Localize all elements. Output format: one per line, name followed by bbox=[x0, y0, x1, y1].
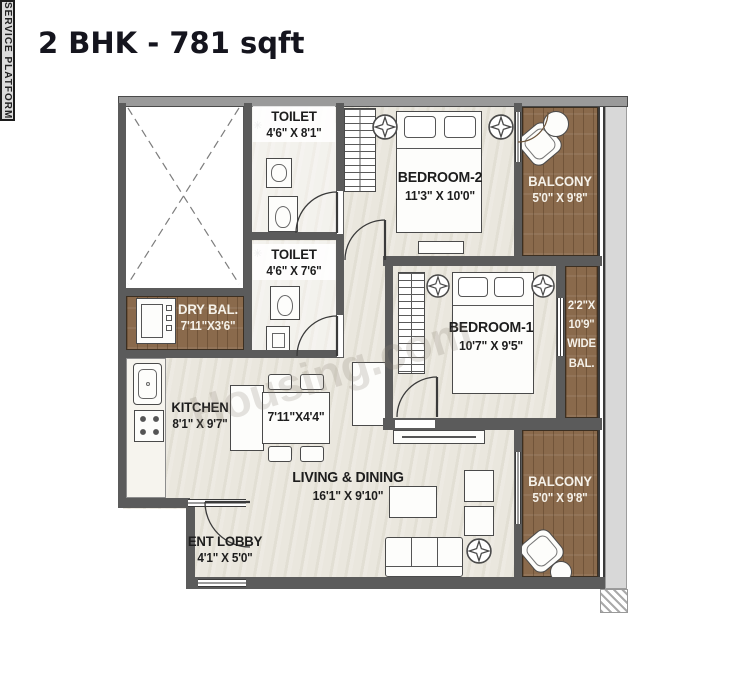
door-opening bbox=[337, 191, 343, 234]
door-opening bbox=[395, 420, 435, 428]
armchair-icon bbox=[464, 470, 494, 502]
dining-chair-icon bbox=[300, 374, 324, 390]
washing-machine-icon bbox=[136, 298, 176, 344]
exterior-wall-top bbox=[118, 96, 628, 107]
round-table-icon bbox=[543, 111, 569, 137]
dining-chair-icon bbox=[268, 374, 292, 390]
pillow-icon bbox=[458, 277, 488, 297]
room-dims: 4'1" X 5'0" bbox=[181, 550, 269, 566]
bedroom1-window bbox=[557, 298, 564, 356]
armchair-icon bbox=[464, 506, 494, 536]
wide-balcony-label: 2'2"X 10'9" WIDE BAL. bbox=[564, 296, 599, 373]
fridge-icon bbox=[352, 362, 388, 426]
room-name: WIDE bbox=[564, 334, 599, 353]
sliding-door-window bbox=[515, 452, 521, 524]
room-dims: 16'1" X 9'10" bbox=[271, 488, 425, 505]
wardrobe-icon bbox=[398, 272, 425, 374]
room-name: BEDROOM-2 bbox=[391, 168, 489, 188]
room-name: TOILET bbox=[255, 245, 334, 263]
kitchen-label: KITCHEN 8'1" X 9'7" bbox=[161, 398, 240, 432]
ent-lobby-label: ENT LOBBY 4'1" X 5'0" bbox=[181, 532, 269, 566]
dining-chair-icon bbox=[268, 446, 292, 462]
room-dims: 8'1" X 9'7" bbox=[161, 416, 240, 432]
toilet-wc-icon bbox=[268, 196, 298, 232]
sofa-icon bbox=[385, 537, 463, 577]
service-platform-label: SERVICE PLATFORM bbox=[2, 2, 13, 119]
room-name: BAL. bbox=[564, 354, 599, 373]
room-name: BEDROOM-1 bbox=[436, 318, 547, 338]
room-dims: 11'3" X 10'0" bbox=[391, 188, 489, 205]
wall bbox=[244, 103, 252, 358]
blanket-line bbox=[453, 305, 533, 306]
dining-chair-icon bbox=[300, 446, 324, 462]
room-name: DRY BAL. bbox=[172, 300, 243, 318]
floor-plan: 2 BHK - 781 sqft SERVICE PLATFORM ✳ ✳ bbox=[0, 0, 746, 694]
ceiling-fan-icon bbox=[426, 274, 450, 298]
room-name: BALCONY bbox=[524, 472, 595, 490]
balcony-bottom-label: BALCONY 5'0" X 9'8" bbox=[524, 472, 595, 506]
room-name: TOILET bbox=[255, 107, 334, 125]
entry-door-opening bbox=[188, 499, 246, 507]
room-dims: 10'9" bbox=[564, 315, 599, 334]
tv-unit-icon bbox=[393, 430, 485, 444]
wall bbox=[250, 232, 337, 240]
bedroom1-label: BEDROOM-1 10'7" X 9'5" bbox=[436, 318, 547, 354]
ceiling-fan-icon bbox=[372, 114, 398, 140]
wall bbox=[385, 256, 393, 428]
wall bbox=[118, 288, 245, 296]
kitchen-sink-icon bbox=[133, 363, 162, 405]
room-dims: 5'0" X 9'8" bbox=[524, 190, 595, 206]
dresser-icon bbox=[418, 241, 464, 254]
wall bbox=[118, 350, 344, 358]
exterior-ledge bbox=[605, 103, 627, 589]
pillow-icon bbox=[404, 116, 436, 138]
lobby-window bbox=[198, 579, 246, 587]
room-dims: 2'2"X bbox=[564, 296, 599, 315]
exterior-blank bbox=[114, 509, 186, 609]
exterior-wall-bottom bbox=[186, 577, 605, 589]
room-dims: 4'6" X 8'1" bbox=[255, 125, 334, 141]
wall bbox=[383, 256, 602, 266]
room-dims: 10'7" X 9'5" bbox=[436, 338, 547, 355]
room-dims: 7'11"X3'6" bbox=[172, 318, 243, 334]
balcony-door-window bbox=[515, 112, 521, 162]
washbasin-icon bbox=[266, 158, 292, 188]
blanket-line bbox=[397, 148, 481, 149]
room-dims: 7'11"X4'4" bbox=[264, 409, 328, 426]
room-name: ENT LOBBY bbox=[181, 532, 269, 550]
balcony-top-label: BALCONY 5'0" X 9'8" bbox=[524, 172, 595, 206]
room-name: BALCONY bbox=[524, 172, 595, 190]
room-name: KITCHEN bbox=[161, 398, 240, 416]
balcony-railing bbox=[598, 103, 605, 589]
ceiling-fan-icon bbox=[531, 274, 555, 298]
toilet2-label: TOILET 4'6" X 7'6" bbox=[253, 244, 336, 280]
pillow-icon bbox=[494, 277, 524, 297]
stove-icon bbox=[134, 410, 164, 442]
pillow-icon bbox=[444, 116, 476, 138]
door-opening bbox=[337, 315, 343, 357]
living-dining-label: LIVING & DINING 16'1" X 9'10" bbox=[271, 468, 425, 504]
room-name: LIVING & DINING bbox=[271, 468, 425, 488]
corner-hatch bbox=[600, 589, 628, 613]
ceiling-fan-icon bbox=[466, 538, 492, 564]
ceiling-fan-icon bbox=[488, 114, 514, 140]
plan-title: 2 BHK - 781 sqft bbox=[38, 26, 304, 60]
duct-shaft bbox=[123, 103, 244, 289]
bedroom2-label: BEDROOM-2 11'3" X 10'0" bbox=[391, 168, 489, 204]
room-dims: 4'6" X 7'6" bbox=[255, 263, 334, 279]
dry-balcony-label: DRY BAL. 7'11"X3'6" bbox=[172, 300, 243, 334]
toilet1-label: TOILET 4'6" X 8'1" bbox=[253, 106, 336, 142]
wall bbox=[118, 103, 126, 508]
room-dims: 5'0" X 9'8" bbox=[524, 490, 595, 506]
wall bbox=[118, 498, 190, 508]
dining-table-label: 7'11"X4'4" bbox=[264, 409, 328, 426]
service-platform: SERVICE PLATFORM bbox=[0, 0, 15, 121]
toilet-wc-icon bbox=[270, 286, 300, 320]
